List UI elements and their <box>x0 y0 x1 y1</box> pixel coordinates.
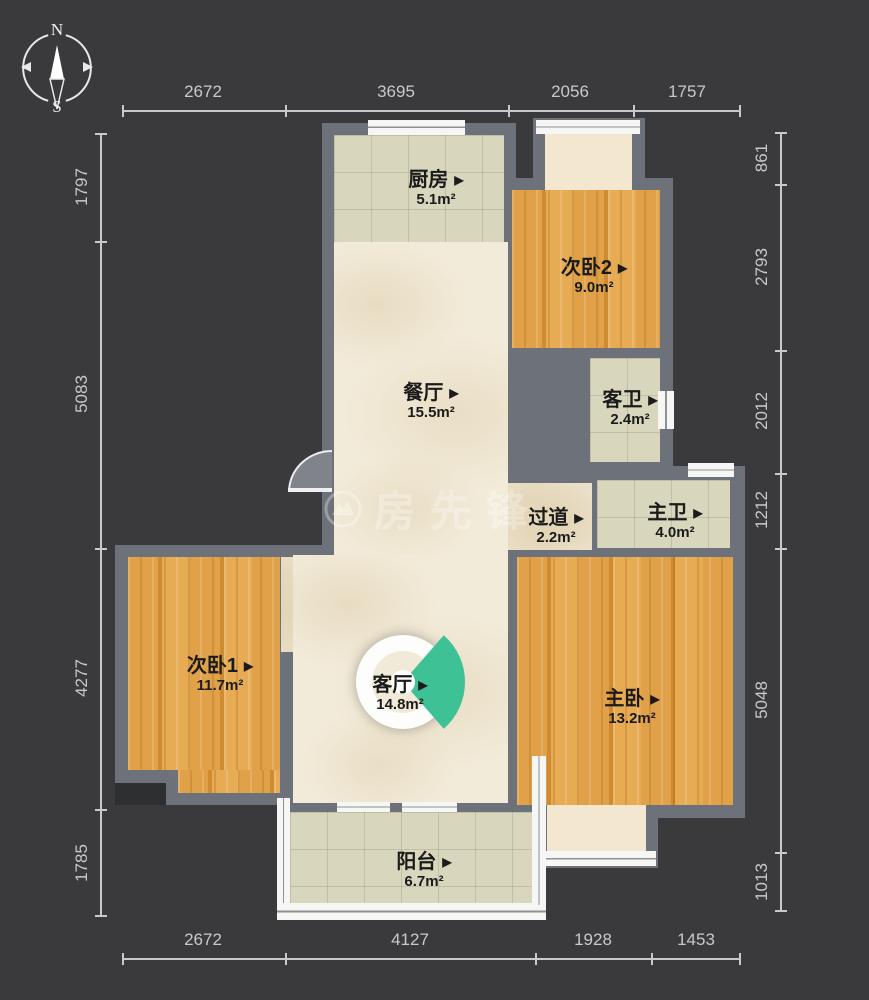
window-kitchen <box>368 120 465 135</box>
compass-north-label: N <box>51 20 63 39</box>
room-label-master[interactable]: 主卧▶ 13.2m² <box>604 688 659 728</box>
dim-label: 5083 <box>72 375 92 413</box>
room-arrow-icon: ▶ <box>449 386 458 400</box>
exterior-notch <box>115 783 166 805</box>
room-arrow-icon: ▶ <box>650 692 659 706</box>
room-label-master-bath[interactable]: 主卫▶ 4.0m² <box>647 502 702 542</box>
dim-label: 1785 <box>72 844 92 882</box>
room-label-balcony[interactable]: 阳台▶ 6.7m² <box>396 851 451 891</box>
room-area: 6.7m² <box>396 873 451 891</box>
dim-label: 2056 <box>551 82 589 102</box>
room-name: 餐厅 <box>403 382 443 404</box>
dim-label: 2672 <box>184 930 222 950</box>
room-arrow-icon: ▶ <box>418 678 427 692</box>
dim-line-right <box>780 132 782 912</box>
window-platform-top <box>536 120 640 134</box>
watermark: 房先锋 <box>322 478 542 539</box>
dim-label: 1212 <box>752 491 772 529</box>
room-arrow-icon: ▶ <box>454 173 463 187</box>
room-name: 过道 <box>528 507 568 529</box>
room-label-guest-bath[interactable]: 客卫▶ 2.4m² <box>602 389 657 429</box>
floor-master <box>517 557 733 805</box>
floor-doorway-bedroom1 <box>281 557 293 652</box>
dim-label: 1797 <box>72 168 92 206</box>
room-name: 客卫 <box>602 389 642 411</box>
room-arrow-icon: ▶ <box>244 659 253 673</box>
dim-label: 4277 <box>72 659 92 697</box>
room-name: 次卧1 <box>187 655 238 677</box>
room-name: 主卫 <box>647 502 687 524</box>
dim-label: 4127 <box>391 930 429 950</box>
room-arrow-icon: ▶ <box>618 261 627 275</box>
compass-south-label: S <box>52 97 61 116</box>
dim-line-top <box>122 110 741 112</box>
room-arrow-icon: ▶ <box>442 855 451 869</box>
window-balcony-left <box>277 798 290 920</box>
room-area: 2.4m² <box>602 411 657 429</box>
watermark-logo-icon <box>322 488 364 530</box>
dim-label: 3695 <box>377 82 415 102</box>
dim-label: 1757 <box>668 82 706 102</box>
dim-label: 5048 <box>752 681 772 719</box>
room-area: 9.0m² <box>561 279 627 297</box>
dim-label: 1928 <box>574 930 612 950</box>
room-label-bedroom2[interactable]: 次卧2▶ 9.0m² <box>561 257 627 297</box>
dim-label: 2012 <box>752 392 772 430</box>
floor-plan-canvas: 房先锋 厨房▶ 5.1m² 次卧2▶ 9.0m² 餐厅▶ 15.5m² 客卫▶ … <box>0 0 869 1000</box>
dim-line-bottom <box>122 958 741 960</box>
floor-platform-bottom <box>547 805 646 851</box>
room-name: 阳台 <box>396 851 436 873</box>
window-balcony-bottom <box>277 903 546 920</box>
window-master-bath <box>688 463 734 477</box>
room-area: 14.8m² <box>372 696 427 714</box>
room-name: 次卧2 <box>561 257 612 279</box>
room-arrow-icon: ▶ <box>693 506 702 520</box>
balcony-door-pane-left <box>337 802 390 812</box>
watermark-text: 房先锋 <box>374 478 542 539</box>
dim-label: 1453 <box>677 930 715 950</box>
room-arrow-icon: ▶ <box>574 511 583 525</box>
room-label-dining[interactable]: 餐厅▶ 15.5m² <box>403 382 458 422</box>
room-label-living[interactable]: 客厅▶ 14.8m² <box>372 674 427 714</box>
compass-icon: N S <box>11 21 103 113</box>
dim-label: 861 <box>752 144 772 172</box>
room-label-bedroom1[interactable]: 次卧1▶ 11.7m² <box>187 655 253 695</box>
room-area: 5.1m² <box>408 191 463 209</box>
window-guest-bath <box>658 391 674 429</box>
window-balcony-right <box>532 756 546 905</box>
floor-platform-top <box>545 133 632 190</box>
room-area: 15.5m² <box>403 404 458 422</box>
room-label-hallway[interactable]: 过道▶ 2.2m² <box>528 507 583 547</box>
window-platform-bottom <box>538 851 656 866</box>
floor-bedroom1-ext <box>178 770 280 793</box>
dim-line-left <box>100 133 102 917</box>
dim-label: 1013 <box>752 863 772 901</box>
room-area: 4.0m² <box>647 524 702 542</box>
dim-label: 2793 <box>752 248 772 286</box>
room-area: 11.7m² <box>187 677 253 695</box>
balcony-door-pane-right <box>402 802 457 812</box>
room-area: 13.2m² <box>604 710 659 728</box>
room-name: 主卧 <box>604 688 644 710</box>
room-name: 客厅 <box>372 674 412 696</box>
room-name: 厨房 <box>408 169 448 191</box>
room-arrow-icon: ▶ <box>648 393 657 407</box>
dim-label: 2672 <box>184 82 222 102</box>
room-label-kitchen[interactable]: 厨房▶ 5.1m² <box>408 169 463 209</box>
room-area: 2.2m² <box>528 529 583 547</box>
